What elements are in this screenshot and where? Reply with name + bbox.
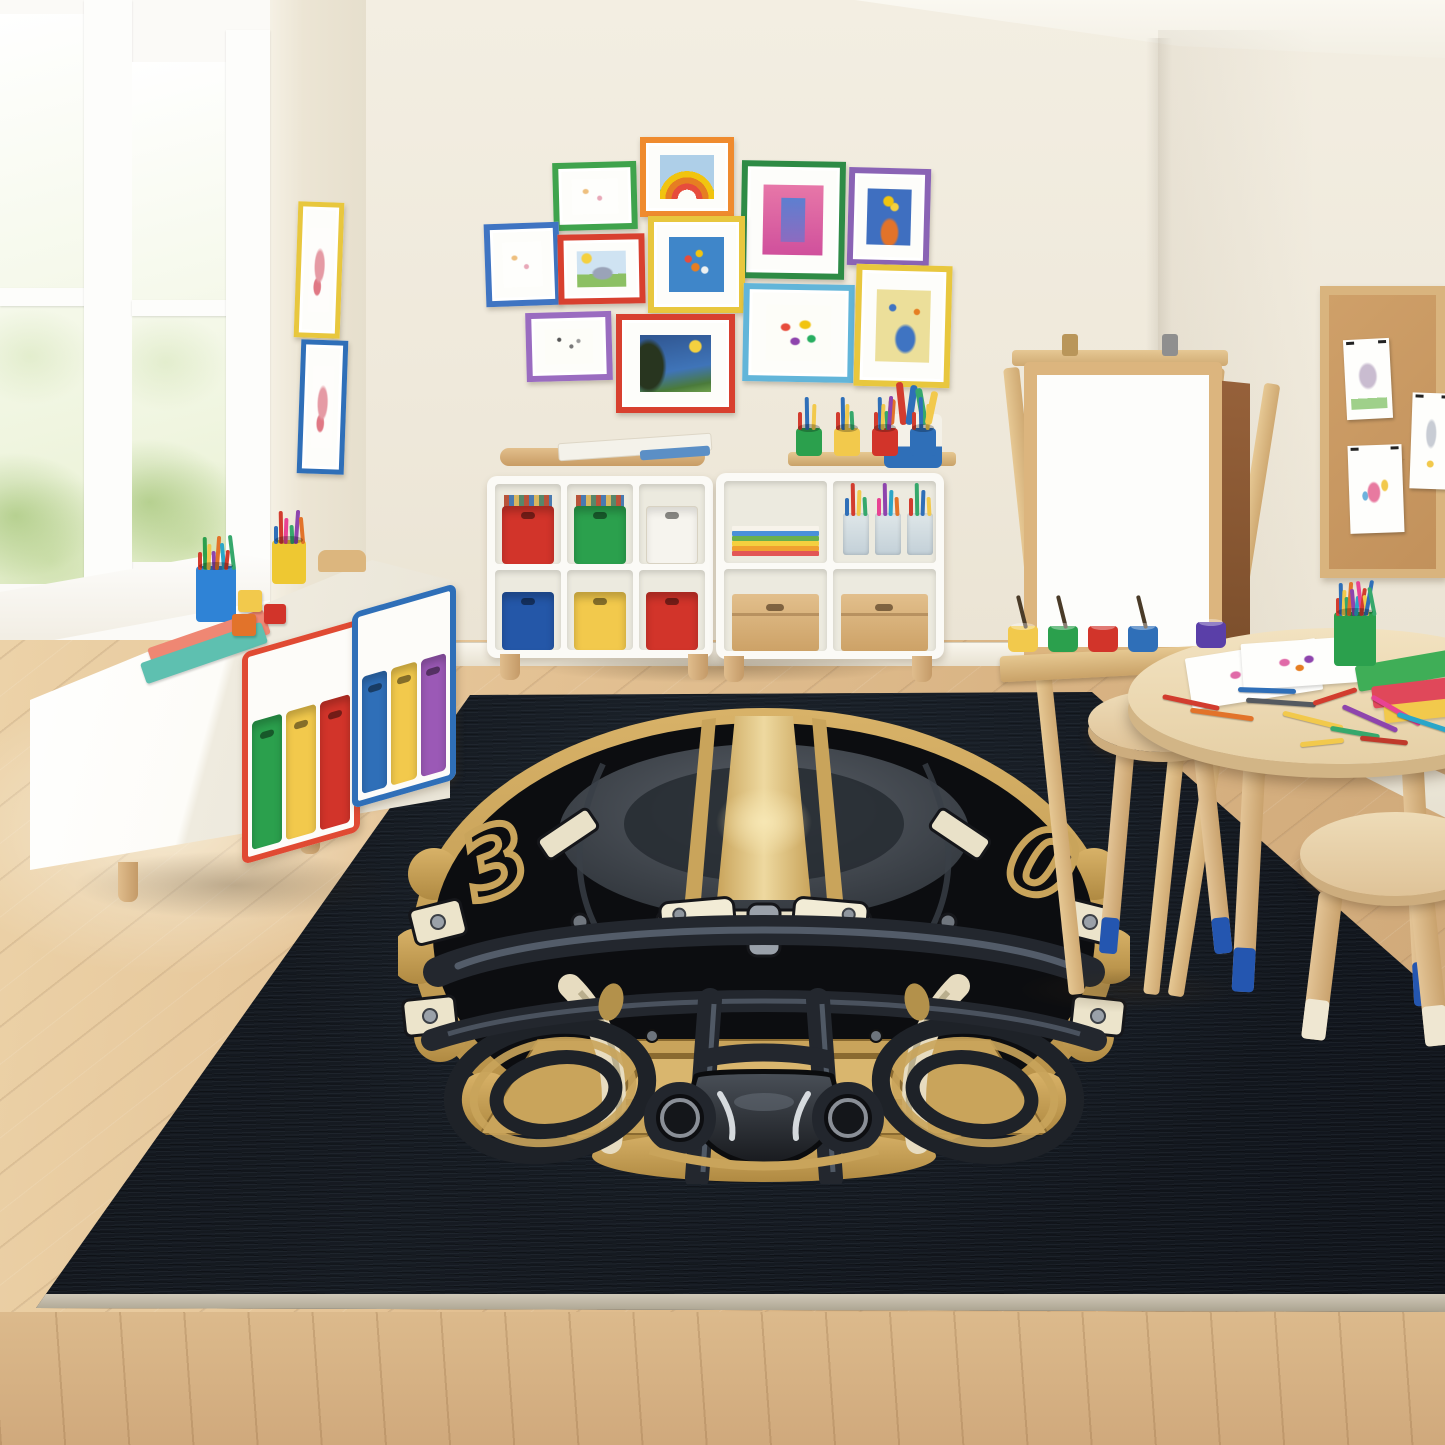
cubby-cell-crate	[724, 569, 827, 651]
bin-handle	[426, 666, 440, 677]
marker-jar	[907, 513, 933, 555]
pencil	[857, 490, 862, 516]
frame-mat	[657, 225, 736, 304]
cubby-foot	[500, 654, 520, 680]
stool-leg-dip-blue	[1099, 917, 1120, 954]
frame-mat	[561, 170, 628, 222]
fabric-bin	[574, 592, 625, 650]
pencil-cup-blue	[196, 566, 236, 622]
pencil-cup-yellow	[272, 540, 306, 584]
bench-foot	[118, 862, 138, 902]
window-mullion	[84, 0, 132, 610]
wall-art-frame	[742, 283, 855, 383]
fabric-bin	[574, 506, 625, 564]
frame-art	[762, 184, 823, 255]
cubby-cell	[567, 570, 633, 650]
stool-leg-dip-cream	[1301, 998, 1330, 1041]
frame-art	[660, 155, 713, 198]
pencil	[921, 490, 926, 516]
wall-art-frame	[853, 264, 952, 388]
fabric-bin	[421, 653, 446, 778]
marker-jar	[875, 513, 901, 555]
pencil	[883, 483, 888, 516]
frame-mat	[567, 242, 637, 295]
bin-handle	[665, 512, 679, 519]
frame-mat	[856, 176, 922, 258]
wooden-crate	[732, 594, 819, 651]
bin-handle	[397, 674, 411, 685]
cubby-foot	[724, 656, 744, 682]
cubby-foot	[688, 654, 708, 680]
cubby-cell	[495, 570, 561, 650]
pencil	[895, 497, 900, 516]
wall-art-frame	[648, 216, 745, 313]
toy-block	[238, 590, 262, 612]
stool-leg-dip-blue	[1211, 917, 1233, 955]
fabric-bin	[646, 592, 697, 650]
easel-back-panel	[1218, 380, 1250, 653]
drawing-doodle	[1414, 404, 1445, 478]
wood-floor-foreground	[0, 1312, 1445, 1445]
toy-block	[264, 604, 286, 624]
paint-cup	[1196, 622, 1226, 648]
paint-cup	[1008, 626, 1038, 652]
bin-handle	[328, 709, 342, 720]
cubby-shelf-left	[487, 476, 713, 658]
pencil	[863, 497, 868, 516]
frame-art	[875, 289, 932, 363]
frame-mat	[493, 231, 552, 298]
bin-handle	[260, 729, 274, 740]
fabric-bin	[646, 506, 697, 564]
bin-handle	[521, 598, 535, 605]
storage-bins	[362, 653, 446, 794]
storage-bench-red	[242, 619, 360, 865]
cubby-cell-paper	[724, 481, 827, 563]
pencil	[927, 497, 932, 516]
pencil	[198, 552, 202, 570]
frame-art	[310, 365, 335, 448]
wooden-toy	[318, 550, 366, 572]
wall-art-frame	[552, 161, 638, 231]
window-sash-bar	[132, 300, 228, 316]
window-sash-bar	[0, 288, 86, 306]
pinned-drawing	[1409, 392, 1445, 489]
pencil	[289, 524, 294, 543]
fabric-bin	[286, 704, 316, 841]
bin-handle	[368, 683, 382, 694]
frame-mat	[751, 292, 845, 374]
construction-paper-stack	[732, 526, 819, 556]
pencil	[926, 404, 931, 430]
pencil	[912, 412, 916, 430]
wall-art-frame	[484, 222, 562, 308]
marker-cup	[796, 428, 822, 456]
pencil	[836, 412, 840, 430]
marker-cup	[910, 428, 936, 456]
frame-art	[669, 237, 724, 292]
football-helmet-graphic: 3 0	[398, 704, 1130, 1184]
frame-mat	[749, 169, 837, 270]
pencil	[798, 412, 802, 430]
paper-sheet	[732, 551, 819, 556]
pencil	[812, 404, 817, 430]
pencil-cup-green	[1334, 612, 1376, 666]
pencil	[877, 498, 881, 516]
frame-art	[545, 328, 594, 365]
fabric-bin	[502, 506, 553, 564]
pencil	[274, 526, 278, 544]
wall-art-frame	[525, 311, 613, 382]
fabric-bin	[502, 592, 553, 650]
cubby-shelf-right	[716, 473, 944, 659]
playroom-scene: 3 0	[0, 0, 1445, 1445]
wall-art-frame	[847, 167, 932, 267]
pencil	[845, 498, 849, 516]
paint-cup	[1048, 626, 1078, 652]
wall-art-frame	[297, 339, 349, 475]
pencil	[889, 490, 894, 516]
wooden-crate	[841, 594, 928, 651]
bin-handle	[593, 598, 607, 605]
easel-clip	[1062, 334, 1078, 356]
kid-scribble	[1259, 644, 1344, 682]
cubby-cell	[567, 484, 633, 564]
frame-art	[765, 304, 831, 361]
frame-mat	[863, 273, 944, 379]
frame-mat	[302, 210, 336, 331]
frame-art	[307, 228, 331, 313]
pinned-drawing	[1347, 444, 1404, 534]
wall-art-frame	[740, 160, 846, 280]
pinned-drawing	[1343, 338, 1393, 420]
frame-art	[640, 335, 711, 392]
fabric-bin	[252, 714, 282, 851]
frame-art	[571, 178, 618, 214]
fabric-bin	[320, 694, 350, 831]
pencil	[919, 397, 924, 430]
drawing-doodle	[1348, 348, 1388, 411]
bin-handle	[521, 512, 535, 519]
frame-mat	[534, 320, 603, 373]
fabric-bin	[391, 661, 416, 786]
frame-mat	[305, 347, 340, 466]
bin-handle	[294, 719, 308, 730]
cubby-cell	[495, 484, 561, 564]
pencil	[279, 510, 284, 543]
fabric-bin	[362, 669, 387, 794]
bin-handle	[593, 512, 607, 519]
frame-mat	[625, 323, 726, 404]
bin-handle	[665, 598, 679, 605]
pencil	[915, 483, 920, 516]
drawing-doodle	[1353, 455, 1399, 523]
frame-art	[866, 188, 912, 245]
frame-art	[502, 241, 543, 288]
wall-art-frame	[616, 314, 735, 413]
paint-cup	[1128, 626, 1158, 652]
easel-whiteboard	[1024, 362, 1222, 660]
cubby-cell-crate	[833, 569, 936, 651]
wall-art-frame	[557, 233, 645, 305]
easel-clip	[1162, 334, 1178, 356]
marker-cup	[834, 428, 860, 456]
pencil	[805, 397, 810, 430]
pencil	[851, 483, 856, 516]
stool-leg-dip-cream	[1422, 1005, 1445, 1047]
cubby-cell-jars	[833, 481, 936, 563]
corkboard	[1320, 286, 1445, 578]
frame-art	[577, 250, 626, 287]
frame-mat	[649, 146, 725, 208]
pencil	[909, 498, 913, 516]
cubby-cell	[639, 570, 705, 650]
paint-cup	[1088, 626, 1118, 652]
marker-cup	[872, 428, 898, 456]
cubby-foot	[912, 656, 932, 682]
toy-block	[232, 614, 256, 636]
marker-jar	[843, 513, 869, 555]
storage-bench-blue	[352, 583, 456, 809]
cubby-cell	[639, 484, 705, 564]
wall-art-frame	[640, 137, 734, 217]
table-leg-dip-blue	[1232, 947, 1256, 992]
wall-art-frame	[294, 201, 345, 339]
